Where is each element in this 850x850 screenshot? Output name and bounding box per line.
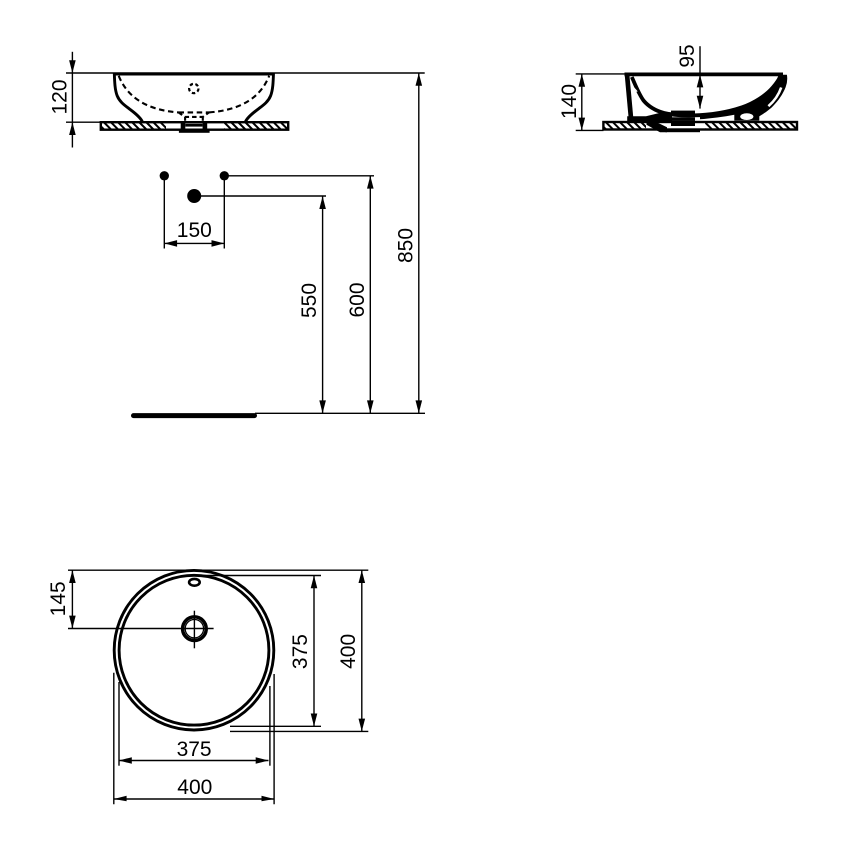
svg-text:400: 400 xyxy=(177,776,212,799)
svg-text:550: 550 xyxy=(298,283,321,318)
svg-text:95: 95 xyxy=(676,44,699,67)
svg-text:150: 150 xyxy=(177,219,212,242)
svg-text:600: 600 xyxy=(346,282,369,317)
svg-text:850: 850 xyxy=(395,228,418,263)
svg-text:375: 375 xyxy=(289,634,312,669)
svg-text:145: 145 xyxy=(47,581,70,616)
svg-text:400: 400 xyxy=(337,634,360,669)
svg-text:140: 140 xyxy=(558,84,581,119)
svg-text:375: 375 xyxy=(177,738,212,761)
svg-text:120: 120 xyxy=(49,79,72,114)
